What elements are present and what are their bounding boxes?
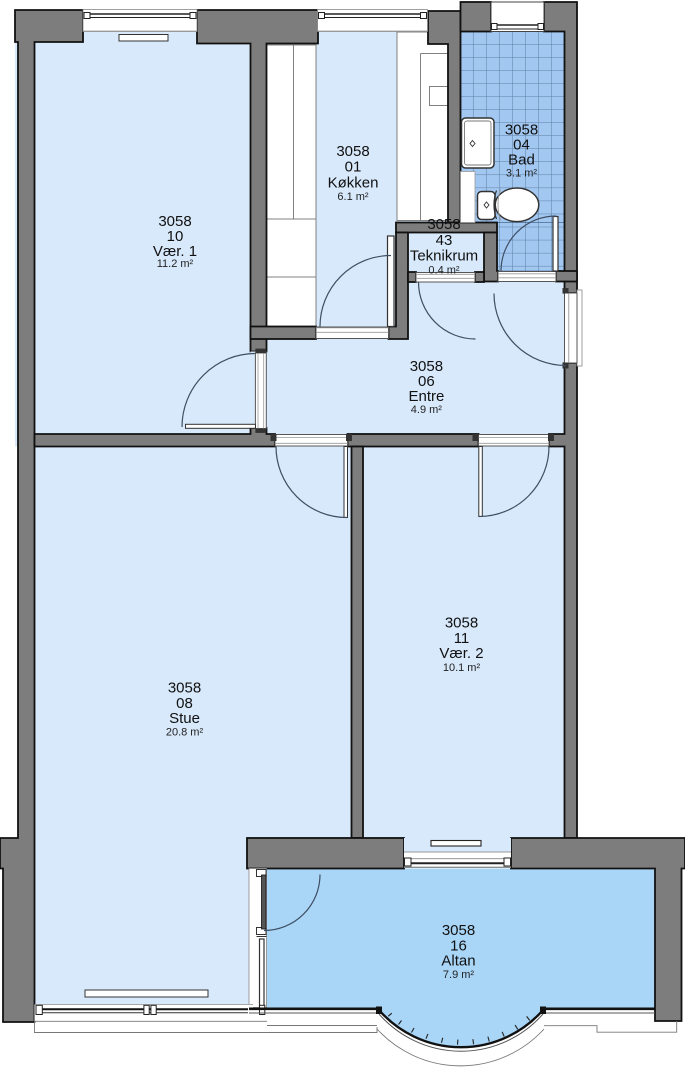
svg-text:Entre: Entre	[408, 388, 444, 405]
svg-text:7.9 m²: 7.9 m²	[443, 969, 475, 981]
svg-text:Stue: Stue	[169, 710, 200, 727]
svg-text:Teknikrum: Teknikrum	[410, 247, 478, 264]
svg-text:3058: 3058	[427, 216, 460, 233]
svg-text:0.4 m²: 0.4 m²	[428, 264, 460, 276]
svg-text:01: 01	[345, 159, 362, 176]
svg-text:Bad: Bad	[508, 152, 535, 169]
svg-text:Vær. 2: Vær. 2	[439, 645, 483, 662]
svg-text:10.1 m²: 10.1 m²	[443, 662, 481, 674]
svg-text:4.9 m²: 4.9 m²	[411, 404, 443, 416]
svg-text:Køkken: Køkken	[328, 175, 379, 192]
svg-text:20.8 m²: 20.8 m²	[166, 726, 204, 738]
svg-text:3058: 3058	[336, 143, 369, 160]
svg-text:6.1 m²: 6.1 m²	[337, 191, 369, 203]
svg-text:3058: 3058	[445, 615, 478, 632]
svg-text:Altan: Altan	[441, 953, 475, 970]
svg-text:3058: 3058	[168, 680, 201, 697]
svg-text:3058: 3058	[442, 922, 475, 939]
svg-text:3.1 m²: 3.1 m²	[506, 168, 538, 180]
svg-text:11.2 m²: 11.2 m²	[157, 258, 194, 270]
